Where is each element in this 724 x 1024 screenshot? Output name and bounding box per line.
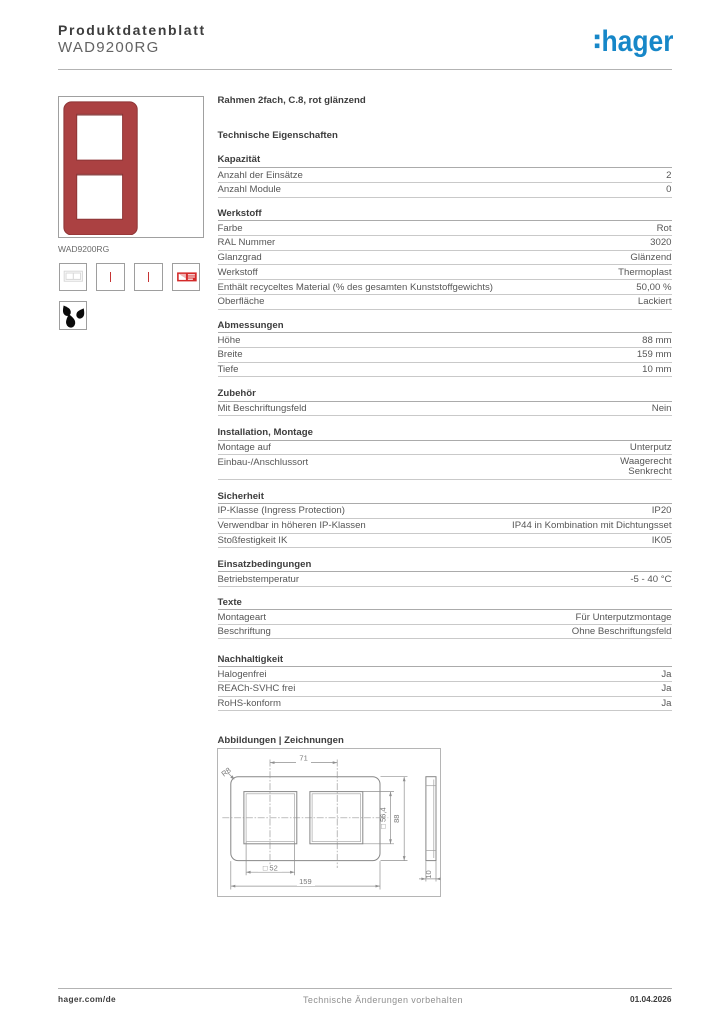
svg-text:88: 88 [392, 815, 401, 823]
svg-text:R8: R8 [219, 765, 232, 778]
svg-text:71: 71 [299, 754, 307, 763]
svg-text:10: 10 [424, 870, 433, 878]
svg-text:□ 52: □ 52 [263, 863, 278, 872]
svg-text:hager: hager [602, 27, 674, 57]
svg-text:159: 159 [299, 877, 312, 886]
svg-text:□ 56,4: □ 56,4 [378, 807, 387, 828]
